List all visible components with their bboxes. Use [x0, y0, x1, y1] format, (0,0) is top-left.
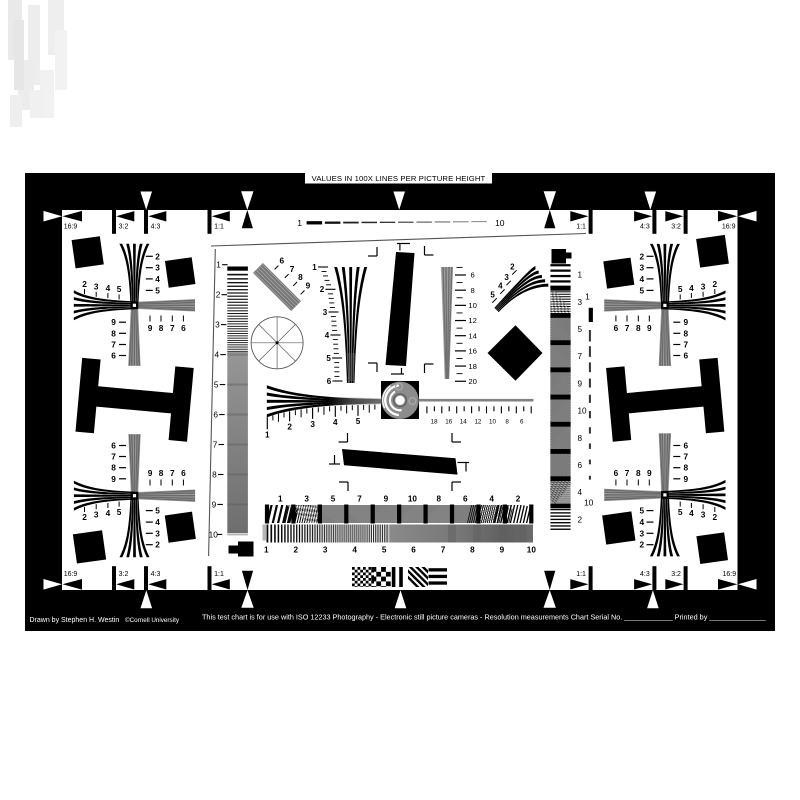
svg-text:16:9: 16:9: [64, 571, 78, 578]
svg-text:7: 7: [625, 468, 630, 478]
svg-text:8: 8: [111, 328, 116, 338]
svg-text:6: 6: [111, 351, 116, 361]
svg-text:2: 2: [510, 262, 515, 271]
svg-text:2: 2: [82, 279, 87, 289]
svg-text:5: 5: [155, 285, 160, 295]
svg-text:7: 7: [625, 323, 630, 333]
svg-text:3: 3: [701, 509, 706, 519]
svg-text:3:2: 3:2: [119, 223, 129, 230]
svg-text:10: 10: [468, 301, 477, 310]
svg-text:7: 7: [170, 323, 175, 333]
svg-text:9: 9: [578, 379, 583, 388]
svg-text:1:1: 1:1: [214, 223, 224, 230]
svg-text:8: 8: [505, 419, 509, 426]
svg-text:16:9: 16:9: [64, 223, 78, 230]
svg-text:3:2: 3:2: [119, 571, 129, 578]
svg-text:5: 5: [490, 290, 495, 299]
svg-text:6: 6: [463, 494, 468, 503]
svg-text:4: 4: [106, 508, 111, 518]
svg-text:3: 3: [155, 263, 160, 273]
svg-text:4:3: 4:3: [640, 223, 650, 230]
svg-text:1:1: 1:1: [576, 571, 586, 578]
svg-text:7: 7: [441, 546, 446, 555]
svg-text:6: 6: [614, 323, 619, 333]
svg-text:7: 7: [170, 468, 175, 478]
svg-text:3: 3: [504, 273, 509, 282]
svg-text:1:1: 1:1: [576, 223, 586, 230]
svg-text:1: 1: [585, 292, 590, 302]
svg-text:4:3: 4:3: [151, 223, 161, 230]
svg-text:9: 9: [111, 317, 116, 327]
svg-text:9: 9: [647, 323, 652, 333]
svg-text:2: 2: [578, 515, 583, 524]
svg-text:5: 5: [678, 507, 683, 517]
svg-text:2: 2: [712, 279, 717, 289]
svg-text:5: 5: [155, 506, 160, 516]
svg-text:4: 4: [689, 508, 694, 518]
svg-text:6: 6: [213, 409, 218, 419]
svg-text:3: 3: [578, 298, 583, 307]
svg-text:8: 8: [470, 546, 475, 555]
svg-text:18: 18: [468, 362, 477, 371]
svg-text:4: 4: [215, 350, 220, 360]
svg-text:4:3: 4:3: [151, 571, 161, 578]
svg-text:3:2: 3:2: [671, 223, 681, 230]
svg-text:2: 2: [320, 285, 325, 294]
svg-text:9: 9: [111, 474, 116, 484]
svg-text:4: 4: [689, 283, 694, 293]
svg-text:18: 18: [431, 419, 438, 426]
svg-text:8: 8: [437, 494, 442, 503]
svg-text:7: 7: [111, 452, 116, 462]
svg-text:4: 4: [333, 418, 338, 427]
svg-text:10: 10: [489, 419, 496, 426]
svg-text:1: 1: [297, 218, 302, 228]
svg-text:2: 2: [639, 540, 644, 550]
svg-text:10: 10: [527, 546, 537, 555]
svg-text:6: 6: [411, 546, 416, 555]
svg-text:4: 4: [639, 274, 644, 284]
svg-text:3: 3: [323, 308, 328, 317]
svg-text:5: 5: [117, 507, 122, 517]
svg-text:2: 2: [287, 422, 292, 431]
svg-text:8: 8: [212, 469, 217, 479]
svg-text:9: 9: [647, 468, 652, 478]
svg-text:4: 4: [578, 488, 583, 497]
svg-text:3: 3: [323, 546, 328, 555]
svg-text:6: 6: [683, 441, 688, 451]
svg-text:4: 4: [155, 274, 160, 284]
svg-text:7: 7: [213, 439, 218, 449]
svg-text:9: 9: [683, 317, 688, 327]
svg-text:VALUES IN 100X LINES PER PICTU: VALUES IN 100X LINES PER PICTURE HEIGHT: [312, 174, 486, 183]
svg-text:4: 4: [155, 517, 160, 527]
svg-text:5: 5: [678, 284, 683, 294]
svg-text:9: 9: [212, 499, 217, 509]
svg-text:1: 1: [264, 546, 269, 555]
svg-text:8: 8: [159, 468, 164, 478]
svg-text:5: 5: [117, 284, 122, 294]
svg-text:8: 8: [470, 286, 474, 295]
svg-text:1: 1: [312, 263, 317, 272]
svg-text:9: 9: [500, 546, 505, 555]
svg-text:6: 6: [111, 441, 116, 451]
svg-text:4: 4: [325, 331, 330, 340]
svg-text:16:9: 16:9: [722, 571, 736, 578]
svg-text:5: 5: [639, 285, 644, 295]
svg-text:1: 1: [278, 494, 283, 503]
svg-text:8: 8: [578, 434, 583, 443]
svg-text:5: 5: [382, 546, 387, 555]
svg-text:6: 6: [327, 377, 332, 386]
svg-text:7: 7: [578, 352, 583, 361]
svg-text:6: 6: [181, 323, 186, 333]
svg-text:6: 6: [578, 461, 583, 470]
svg-text:This test chart is for use wit: This test chart is for use with ISO 1223…: [202, 613, 767, 622]
svg-text:9: 9: [148, 323, 153, 333]
svg-text:6: 6: [279, 256, 284, 266]
svg-text:4:3: 4:3: [640, 571, 650, 578]
svg-text:8: 8: [683, 328, 688, 338]
svg-text:9: 9: [148, 468, 153, 478]
svg-text:3: 3: [94, 509, 99, 519]
svg-text:1:1: 1:1: [214, 571, 224, 578]
svg-text:3: 3: [215, 320, 220, 330]
svg-text:8: 8: [111, 463, 116, 473]
svg-text:1: 1: [216, 260, 221, 270]
svg-text:5: 5: [639, 506, 644, 516]
svg-text:5: 5: [578, 325, 583, 334]
svg-text:10: 10: [578, 407, 588, 416]
svg-text:9: 9: [384, 494, 389, 503]
svg-text:8: 8: [636, 468, 641, 478]
svg-text:2: 2: [82, 512, 87, 522]
svg-text:5: 5: [356, 417, 361, 426]
svg-text:2: 2: [155, 251, 160, 261]
svg-text:3:2: 3:2: [671, 571, 681, 578]
svg-text:16:9: 16:9: [722, 223, 736, 230]
svg-text:7: 7: [111, 340, 116, 350]
svg-text:4: 4: [639, 517, 644, 527]
svg-text:3: 3: [304, 494, 309, 503]
svg-text:16: 16: [468, 347, 477, 356]
svg-text:5: 5: [331, 494, 336, 503]
svg-text:3: 3: [701, 282, 706, 292]
svg-text:10: 10: [408, 494, 418, 503]
svg-text:12: 12: [474, 419, 481, 426]
svg-text:10: 10: [584, 497, 594, 507]
svg-text:6: 6: [181, 468, 186, 478]
svg-text:2: 2: [155, 540, 160, 550]
svg-text:20: 20: [468, 377, 477, 386]
svg-text:2: 2: [639, 251, 644, 261]
svg-text:2: 2: [516, 494, 521, 503]
svg-text:7: 7: [357, 494, 362, 503]
svg-text:9: 9: [306, 281, 311, 291]
svg-text:Drawn by Stephen H. Westin: Drawn by Stephen H. Westin: [30, 617, 120, 624]
svg-text:8: 8: [298, 272, 303, 282]
svg-text:2: 2: [216, 290, 221, 300]
svg-text:1: 1: [265, 430, 270, 439]
svg-text:7: 7: [683, 452, 688, 462]
svg-text:2: 2: [293, 546, 298, 555]
svg-text:5: 5: [214, 379, 219, 389]
svg-text:7: 7: [683, 340, 688, 350]
svg-text:3: 3: [310, 420, 315, 429]
svg-text:©Cornell University: ©Cornell University: [125, 616, 180, 624]
svg-text:10: 10: [495, 218, 505, 228]
svg-text:14: 14: [468, 331, 477, 340]
svg-text:14: 14: [460, 419, 467, 426]
svg-text:8: 8: [159, 323, 164, 333]
svg-text:12: 12: [468, 316, 477, 325]
svg-text:16: 16: [445, 419, 452, 426]
svg-text:3: 3: [155, 528, 160, 538]
svg-text:9: 9: [683, 474, 688, 484]
svg-text:5: 5: [326, 354, 331, 363]
svg-text:6: 6: [683, 351, 688, 361]
svg-text:4: 4: [106, 283, 111, 293]
svg-text:3: 3: [639, 263, 644, 273]
svg-text:1: 1: [578, 271, 583, 280]
svg-text:4: 4: [489, 494, 494, 503]
svg-text:6: 6: [470, 271, 474, 280]
svg-text:6: 6: [520, 419, 524, 426]
svg-text:3: 3: [94, 282, 99, 292]
svg-text:6: 6: [614, 468, 619, 478]
svg-text:2: 2: [712, 512, 717, 522]
svg-text:4: 4: [498, 282, 503, 291]
svg-text:8: 8: [636, 323, 641, 333]
svg-text:3: 3: [639, 528, 644, 538]
svg-text:8: 8: [683, 463, 688, 473]
svg-text:7: 7: [290, 264, 295, 274]
svg-text:4: 4: [352, 546, 357, 555]
